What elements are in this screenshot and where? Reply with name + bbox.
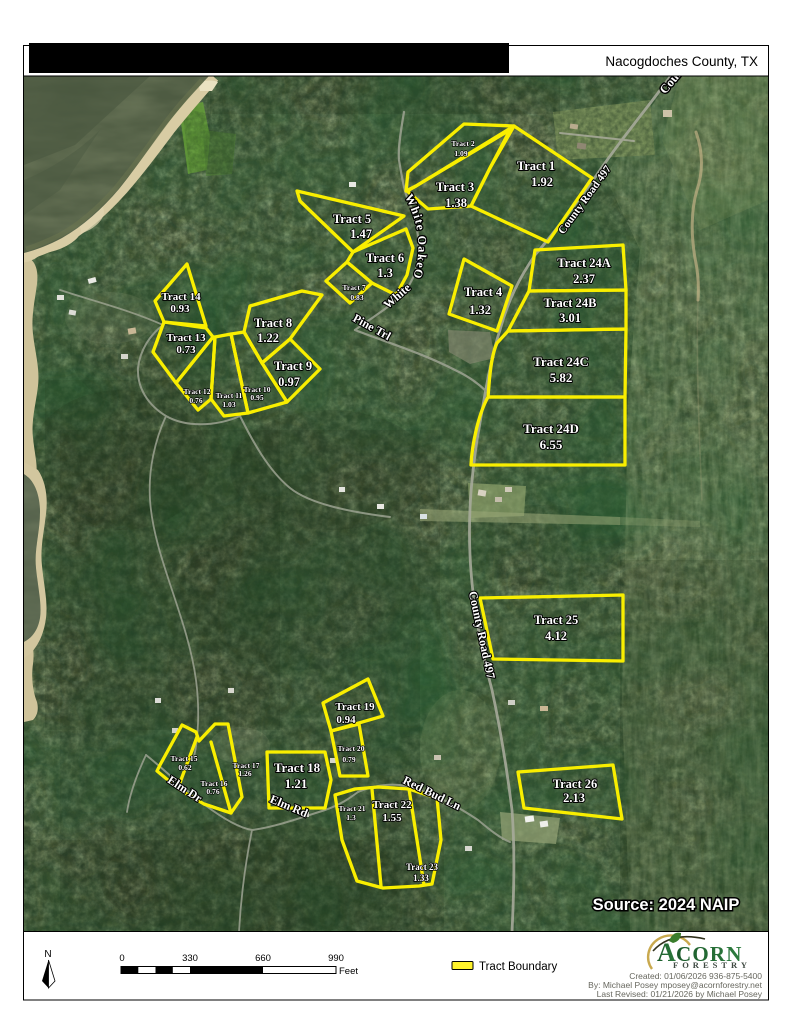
svg-text:660: 660: [255, 953, 271, 964]
svg-text:1.32: 1.32: [469, 303, 491, 317]
svg-text:0.83: 0.83: [350, 293, 363, 302]
svg-text:1.03: 1.03: [222, 400, 235, 409]
svg-text:3.01: 3.01: [559, 311, 581, 325]
svg-text:Tract 24C: Tract 24C: [533, 354, 589, 369]
svg-text:Tract 3: Tract 3: [436, 180, 474, 194]
svg-text:Tract 20: Tract 20: [337, 744, 364, 753]
svg-text:Tract 13: Tract 13: [166, 332, 206, 344]
svg-text:Tract 14: Tract 14: [161, 291, 201, 303]
svg-text:Tract 23: Tract 23: [406, 862, 439, 872]
svg-text:0.79: 0.79: [342, 755, 355, 764]
svg-text:0.73: 0.73: [176, 344, 196, 356]
svg-text:4.12: 4.12: [545, 629, 567, 643]
svg-text:Tract 5: Tract 5: [333, 212, 371, 226]
svg-text:Tract 6: Tract 6: [366, 251, 404, 265]
svg-text:Tract 2: Tract 2: [451, 139, 474, 148]
svg-text:0.94: 0.94: [336, 714, 356, 726]
svg-text:Tract 12: Tract 12: [183, 387, 210, 396]
svg-text:Tract 1: Tract 1: [517, 159, 555, 173]
svg-text:Tract 25: Tract 25: [534, 613, 579, 627]
svg-text:Tract 24D: Tract 24D: [523, 421, 579, 436]
svg-text:1.09: 1.09: [454, 149, 467, 158]
svg-text:N: N: [44, 949, 51, 960]
svg-text:Feet: Feet: [339, 966, 358, 977]
svg-text:Tract 26: Tract 26: [553, 777, 598, 791]
svg-text:2.37: 2.37: [573, 272, 595, 286]
svg-text:0.93: 0.93: [170, 303, 190, 315]
svg-text:6.55: 6.55: [540, 437, 563, 452]
svg-text:1.47: 1.47: [350, 227, 372, 241]
svg-text:Nacogdoches County, TX: Nacogdoches County, TX: [605, 54, 758, 69]
svg-text:Tract 21: Tract 21: [338, 804, 365, 813]
svg-text:1.3: 1.3: [346, 813, 356, 822]
svg-text:0.76: 0.76: [206, 787, 219, 796]
svg-text:Tract 18: Tract 18: [274, 760, 321, 775]
svg-text:0.76: 0.76: [189, 396, 202, 405]
svg-text:1.21: 1.21: [285, 776, 308, 791]
svg-text:Tract 9: Tract 9: [274, 359, 312, 373]
svg-text:Tract 7: Tract 7: [342, 283, 365, 292]
svg-text:1.33: 1.33: [413, 873, 429, 883]
svg-text:990: 990: [328, 953, 344, 964]
svg-text:1.55: 1.55: [382, 812, 402, 824]
svg-text:0.95: 0.95: [250, 393, 263, 402]
svg-text:0.62: 0.62: [178, 763, 191, 772]
svg-text:Tract 15: Tract 15: [170, 754, 197, 763]
svg-text:Tract 24B: Tract 24B: [544, 296, 597, 310]
svg-text:Last Revised: 01/21/2026 by Mi: Last Revised: 01/21/2026 by Michael Pose…: [597, 989, 763, 999]
svg-text:0.97: 0.97: [278, 375, 300, 389]
svg-text:2.13: 2.13: [563, 791, 585, 805]
svg-text:Tract 8: Tract 8: [254, 316, 292, 330]
svg-text:Tract 19: Tract 19: [335, 701, 375, 713]
svg-text:Tract 22: Tract 22: [372, 799, 412, 811]
svg-text:Tract Boundary: Tract Boundary: [479, 961, 557, 973]
svg-text:1.26: 1.26: [238, 769, 251, 778]
svg-text:1.3: 1.3: [377, 266, 393, 280]
svg-text:330: 330: [182, 953, 198, 964]
svg-text:FORESTRY: FORESTRY: [673, 960, 751, 970]
svg-text:5.82: 5.82: [550, 370, 573, 385]
svg-text:Tract 24A: Tract 24A: [557, 256, 611, 270]
svg-text:1.22: 1.22: [257, 331, 279, 345]
svg-text:1.92: 1.92: [531, 175, 553, 189]
svg-text:Tract 11: Tract 11: [216, 391, 243, 400]
svg-text:Source: 2024 NAIP: Source: 2024 NAIP: [593, 896, 740, 914]
svg-text:0: 0: [119, 953, 124, 964]
svg-text:Tract 4: Tract 4: [464, 285, 503, 299]
svg-text:1.38: 1.38: [445, 196, 467, 210]
